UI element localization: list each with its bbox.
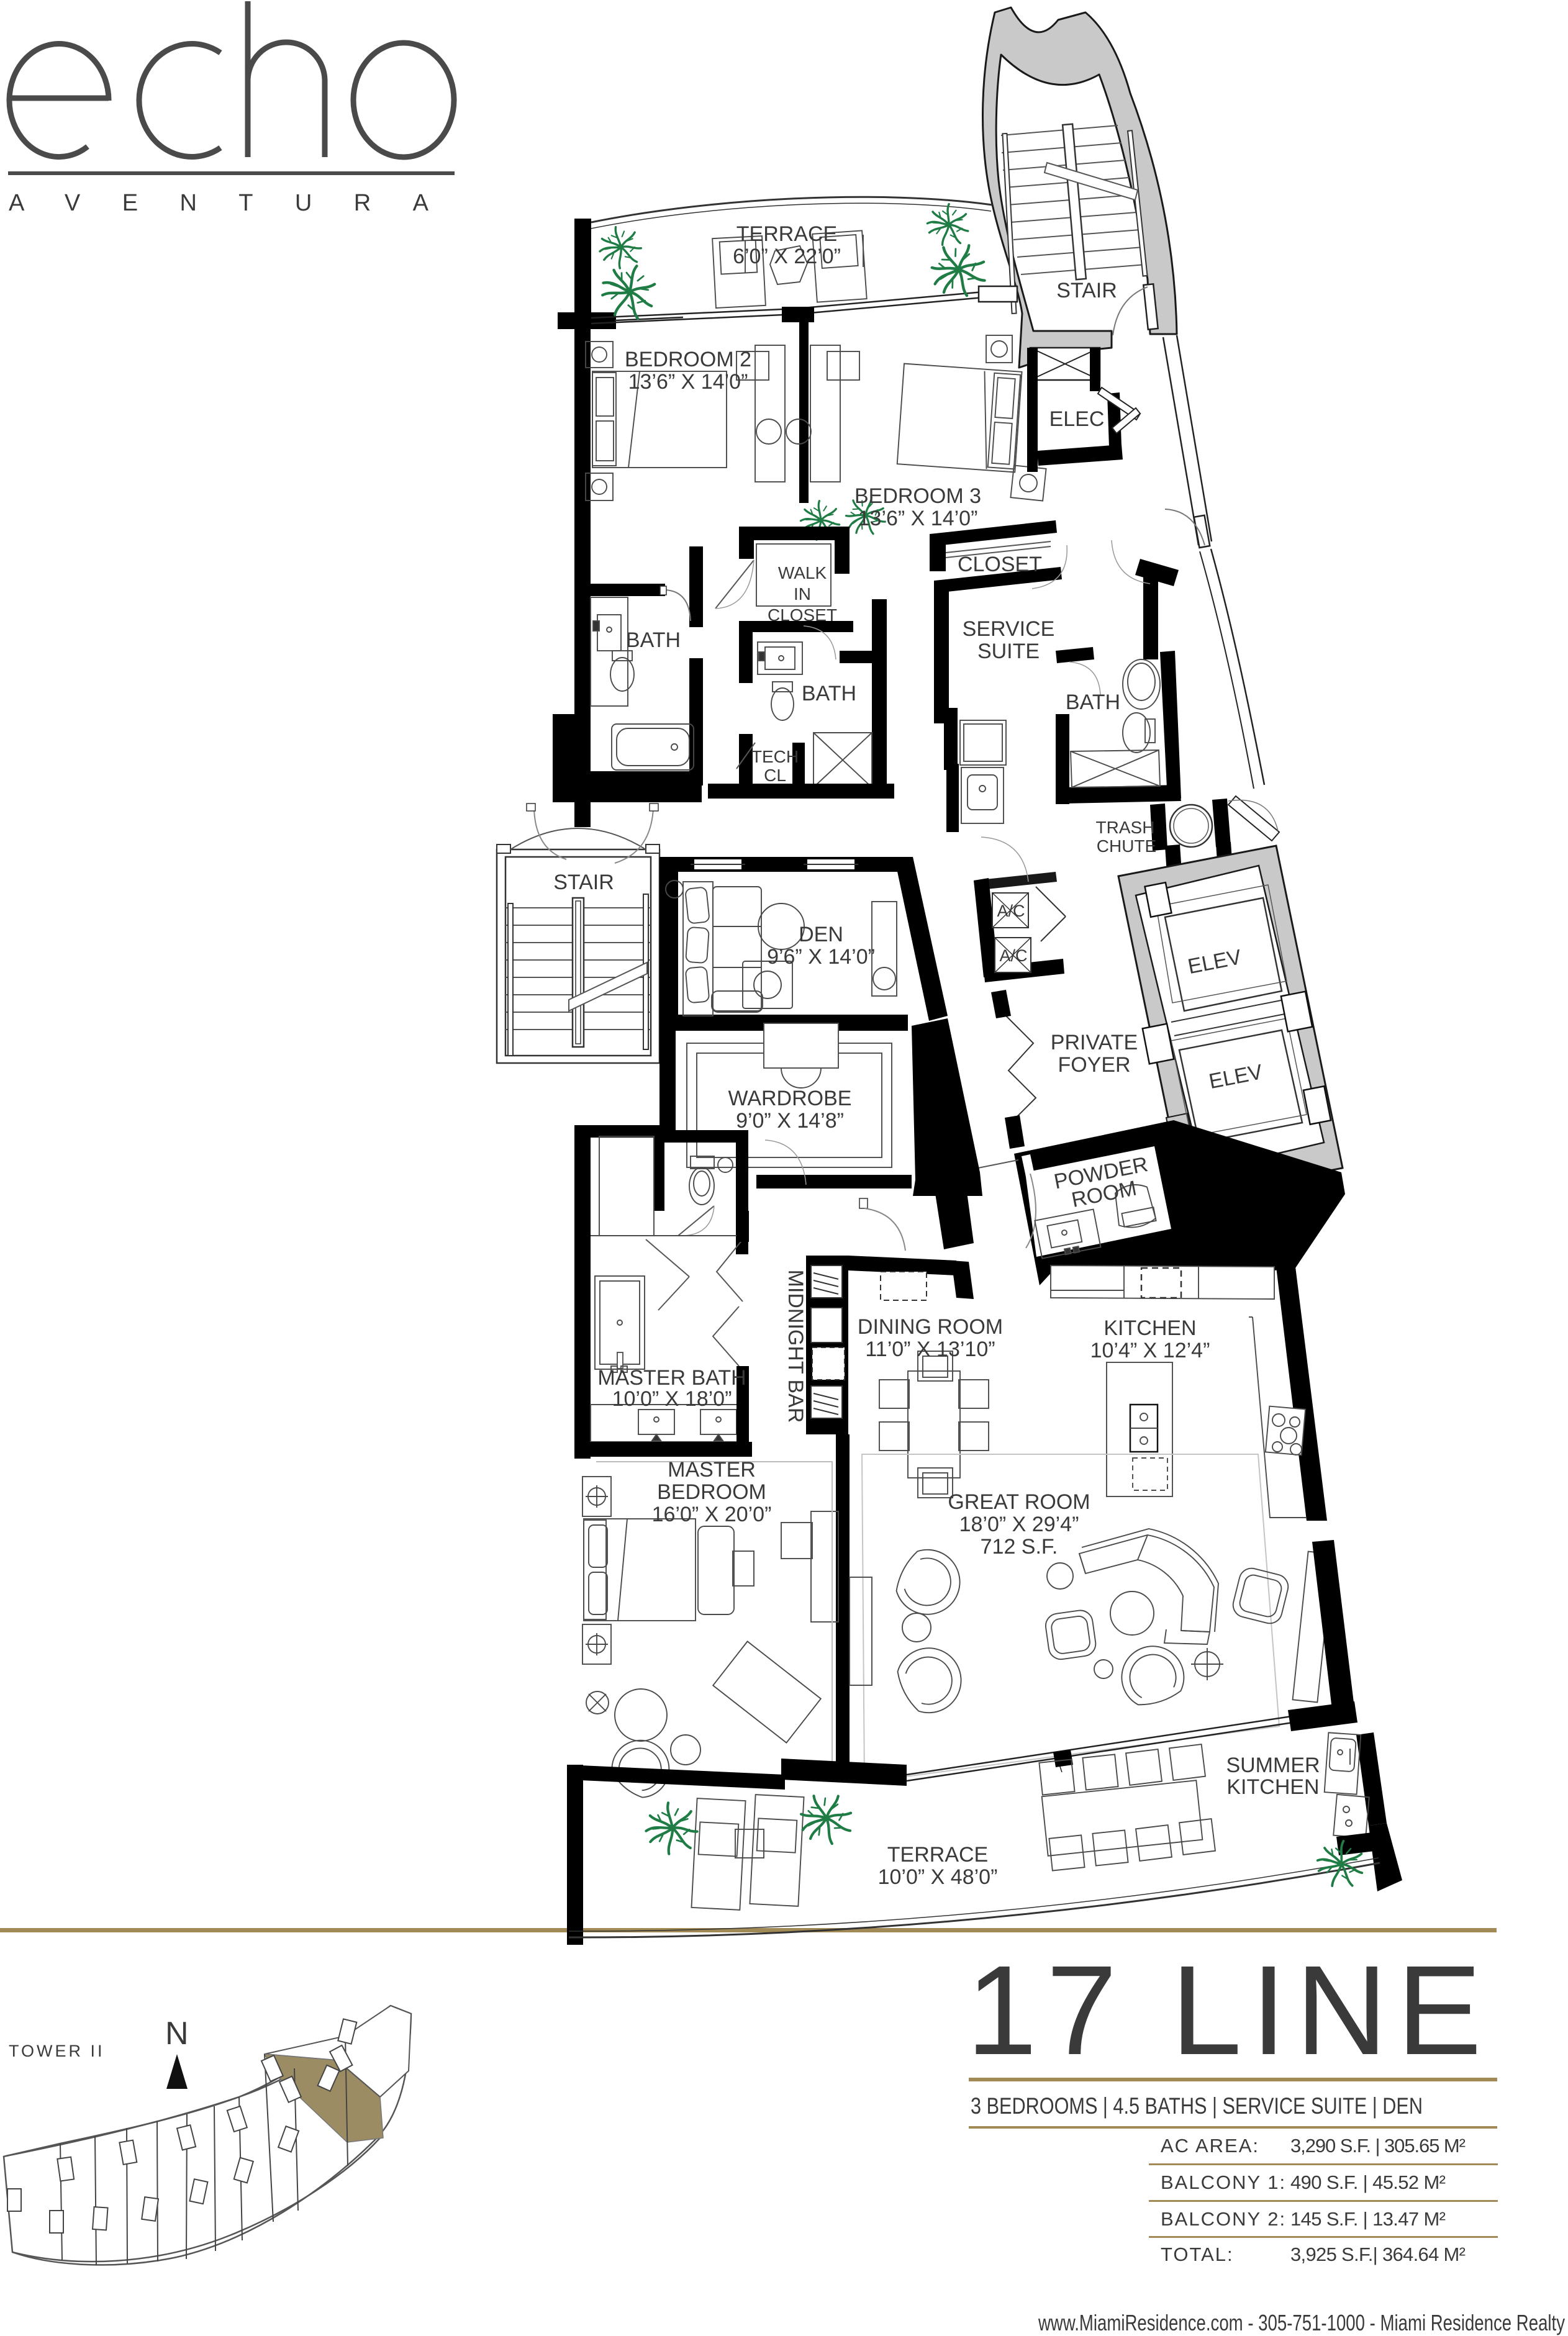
svg-text:CL: CL — [764, 766, 786, 785]
svg-text:9’6” X 14’0”: 9’6” X 14’0” — [767, 945, 875, 969]
svg-text:WALK: WALK — [778, 563, 827, 582]
svg-text:TOTAL:: TOTAL: — [1161, 2243, 1234, 2265]
svg-text:FOYER: FOYER — [1058, 1053, 1130, 1077]
svg-text:KITCHEN: KITCHEN — [1226, 1775, 1319, 1799]
svg-text:SUMMER: SUMMER — [1226, 1754, 1320, 1777]
svg-text:BEDROOM 3: BEDROOM 3 — [854, 484, 981, 508]
svg-text:10’0” X 18’0”: 10’0” X 18’0” — [612, 1387, 732, 1411]
svg-text:STAIR: STAIR — [1056, 279, 1117, 302]
svg-text:PRIVATE: PRIVATE — [1051, 1031, 1138, 1054]
svg-text:18’0” X 29’4”: 18’0” X 29’4” — [959, 1513, 1079, 1536]
svg-text:9’0” X 14’8”: 9’0” X 14’8” — [736, 1109, 844, 1133]
svg-text:SUITE: SUITE — [977, 640, 1040, 663]
svg-text:TRASH: TRASH — [1096, 818, 1155, 837]
svg-text:DEN: DEN — [799, 923, 843, 946]
svg-text:BALCONY 1:: BALCONY 1: — [1161, 2171, 1286, 2193]
svg-text:www.MiamiResidence.com - 305: www.MiamiResidence.com - 305-751-1000 - … — [1038, 2310, 1565, 2335]
svg-text:BALCONY 2:: BALCONY 2: — [1161, 2208, 1286, 2230]
svg-text:BEDROOM 2: BEDROOM 2 — [625, 348, 751, 371]
svg-text:TECH: TECH — [751, 747, 799, 766]
svg-text:SERVICE: SERVICE — [963, 617, 1055, 641]
svg-text:490 S.F. | 45.52 M²: 490 S.F. | 45.52 M² — [1290, 2171, 1446, 2193]
svg-text:ELEC: ELEC — [1049, 407, 1105, 431]
svg-text:145 S.F. | 13.47 M²: 145 S.F. | 13.47 M² — [1290, 2208, 1446, 2230]
svg-text:GREAT ROOM: GREAT ROOM — [948, 1490, 1090, 1514]
svg-text:11’0” X 13’10”: 11’0” X 13’10” — [865, 1338, 995, 1361]
svg-text:BATH: BATH — [626, 628, 681, 652]
svg-text:3,290 S.F. | 305.65 M²: 3,290 S.F. | 305.65 M² — [1290, 2135, 1466, 2157]
svg-text:3,925 S.F.| 364.64 M²: 3,925 S.F.| 364.64 M² — [1290, 2243, 1466, 2265]
svg-text:TERRACE: TERRACE — [736, 222, 837, 246]
svg-text:N: N — [165, 2016, 189, 2052]
svg-text:DINING ROOM: DINING ROOM — [858, 1315, 1003, 1339]
svg-text:CLOSET: CLOSET — [958, 553, 1042, 576]
svg-text:10’0” X 48’0”: 10’0” X 48’0” — [878, 1865, 998, 1889]
svg-text:A/C: A/C — [997, 902, 1025, 920]
svg-text:STAIR: STAIR — [553, 871, 614, 894]
svg-text:WARDROBE: WARDROBE — [728, 1087, 852, 1110]
svg-text:IN: IN — [794, 584, 811, 604]
svg-text:BATH: BATH — [1066, 690, 1120, 714]
svg-text:MIDNIGHT BAR: MIDNIGHT BAR — [784, 1270, 807, 1423]
svg-text:13’6” X 14’0”: 13’6” X 14’0” — [858, 507, 978, 530]
svg-text:KITCHEN: KITCHEN — [1103, 1316, 1196, 1340]
svg-text:TERRACE: TERRACE — [887, 1843, 988, 1867]
svg-text:16’0” X 20’0”: 16’0” X 20’0” — [652, 1503, 772, 1526]
svg-text:BEDROOM: BEDROOM — [657, 1480, 766, 1504]
svg-text:6’0” X 22’0”: 6’0” X 22’0” — [733, 245, 841, 268]
svg-text:3 BEDROOMS | 4.5 BATHS | SERVI: 3 BEDROOMS | 4.5 BATHS | SERVICE SUITE |… — [971, 2093, 1423, 2119]
svg-text:10’4” X 12’4”: 10’4” X 12’4” — [1090, 1339, 1210, 1362]
svg-text:TOWER II: TOWER II — [9, 2042, 105, 2060]
svg-text:A/C: A/C — [999, 946, 1027, 965]
svg-text:MASTER BATH: MASTER BATH — [597, 1366, 746, 1390]
svg-text:AC AREA:: AC AREA: — [1161, 2135, 1259, 2157]
svg-text:13’6” X 14’0”: 13’6” X 14’0” — [628, 370, 748, 394]
svg-text:CHUTE: CHUTE — [1097, 836, 1156, 856]
svg-text:712 S.F.: 712 S.F. — [981, 1535, 1058, 1559]
svg-text:BATH: BATH — [802, 682, 856, 705]
svg-text:MASTER: MASTER — [668, 1458, 756, 1482]
